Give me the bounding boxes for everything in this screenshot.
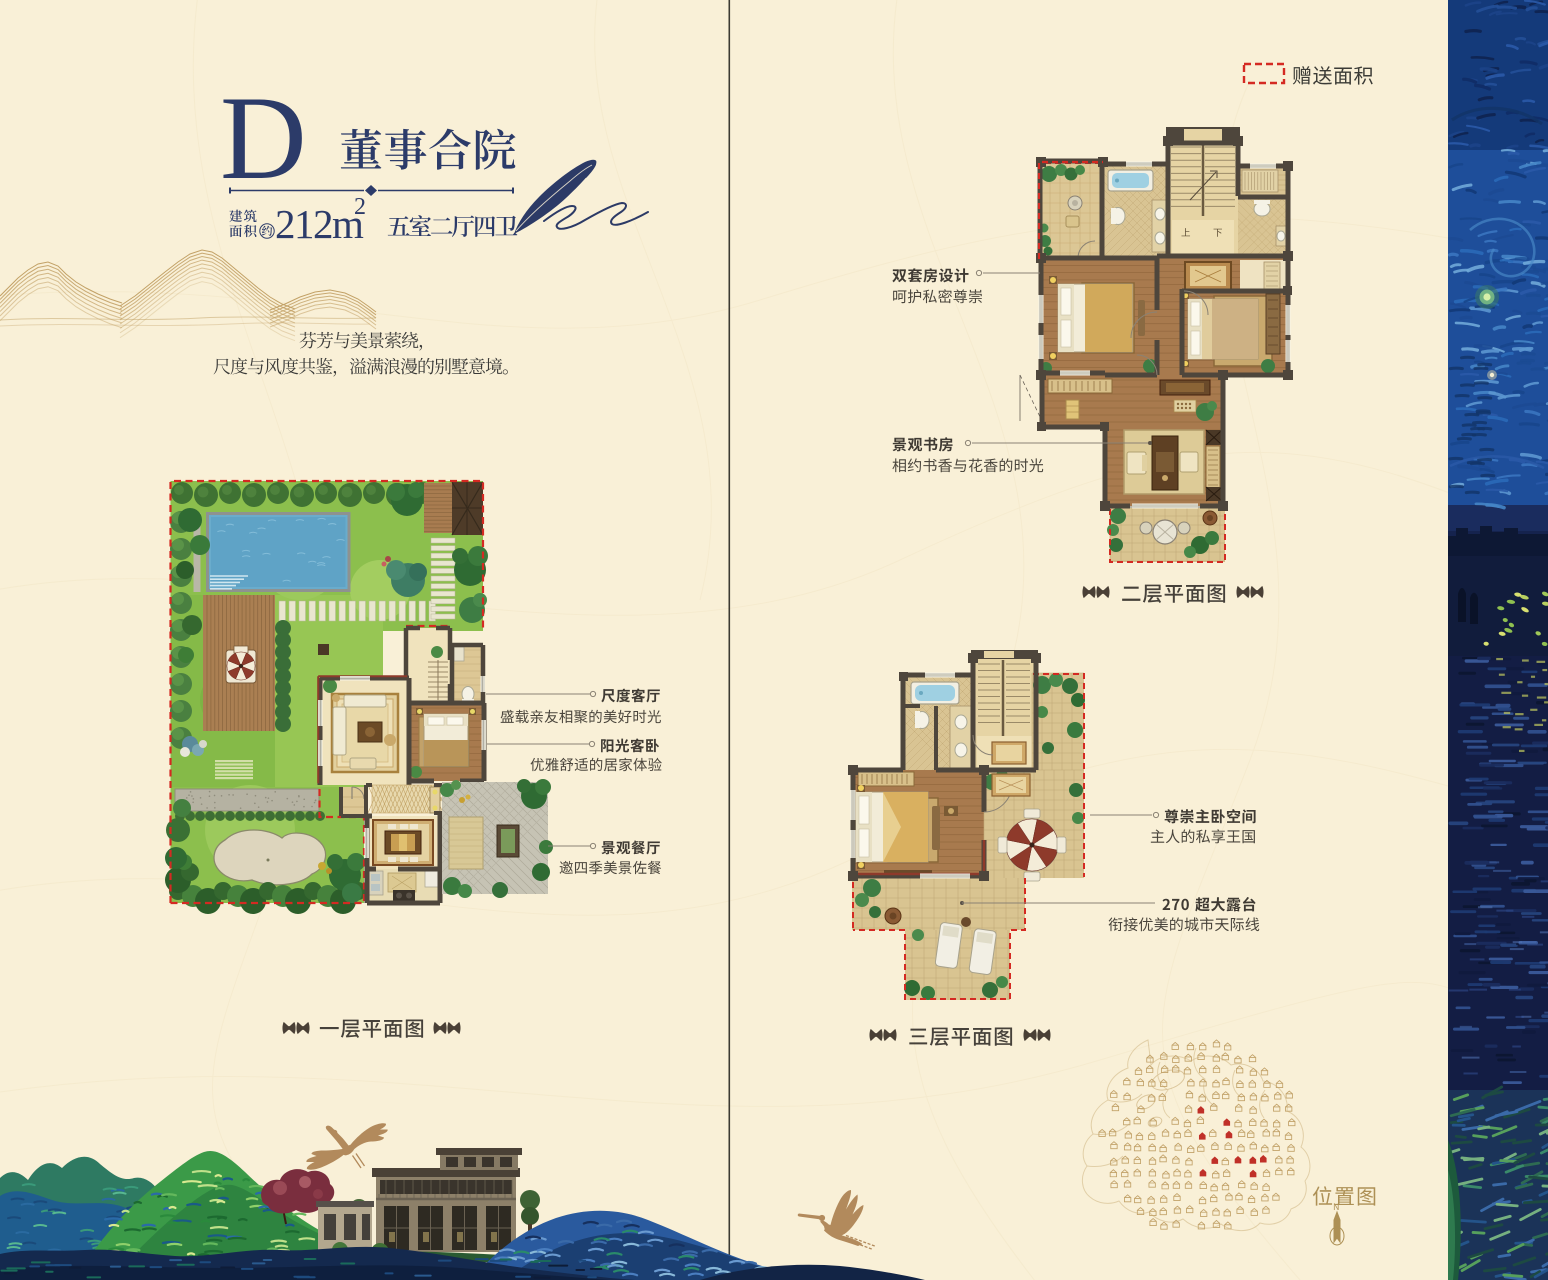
svg-text:212m: 212m <box>275 201 364 247</box>
svg-text:D: D <box>220 71 307 204</box>
svg-text:2: 2 <box>354 194 366 220</box>
